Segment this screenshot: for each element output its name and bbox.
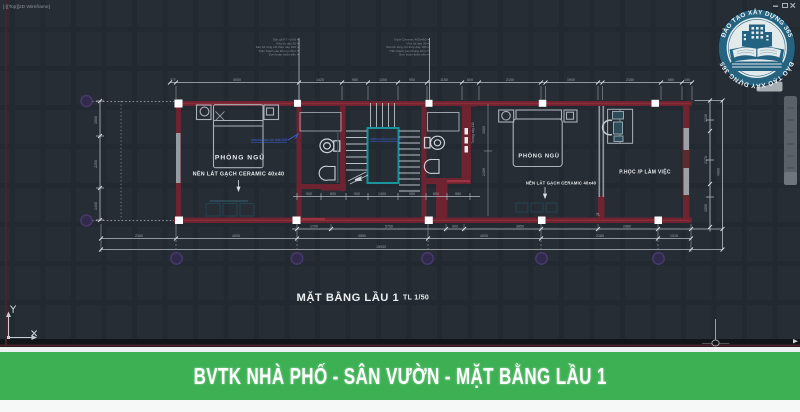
svg-text:TL 1/50: TL 1/50 <box>403 295 429 302</box>
svg-text:1420: 1420 <box>316 78 324 82</box>
svg-text:340: 340 <box>684 78 690 82</box>
svg-text:950: 950 <box>352 78 358 82</box>
svg-text:4000: 4000 <box>232 234 240 238</box>
svg-text:1330: 1330 <box>704 114 708 122</box>
svg-text:2200: 2200 <box>94 160 98 168</box>
svg-text:1700: 1700 <box>310 225 318 229</box>
svg-text:PHÒNG NGỦ: PHÒNG NGỦ <box>518 152 559 160</box>
svg-text:1800: 1800 <box>704 204 708 212</box>
svg-text:ĐIỂM NHẬN NƯỚC SH: ĐIỂM NHẬN NƯỚC SH <box>371 136 402 141</box>
svg-text:800: 800 <box>330 192 336 196</box>
svg-text:4850: 4850 <box>358 234 366 238</box>
svg-text:800: 800 <box>433 192 439 196</box>
svg-text:1015: 1015 <box>670 234 678 238</box>
svg-text:PHÒNG NGỦ: PHÒNG NGỦ <box>215 153 265 162</box>
svg-text:4900: 4900 <box>717 168 721 176</box>
svg-text:1900: 1900 <box>567 78 575 82</box>
svg-text:2180: 2180 <box>596 234 604 238</box>
svg-text:TL: TL <box>596 213 600 217</box>
svg-text:Tường xây 110: Tường xây 110 <box>471 122 475 144</box>
svg-text:4000: 4000 <box>480 234 488 238</box>
svg-text:Sơn hoàn thiện trần: Sơn hoàn thiện trần <box>399 53 427 57</box>
svg-text:1500: 1500 <box>94 116 98 124</box>
svg-text:600: 600 <box>467 78 473 82</box>
svg-text:900: 900 <box>452 225 458 229</box>
svg-text:950: 950 <box>409 192 415 196</box>
svg-text:2100: 2100 <box>506 78 514 82</box>
svg-text:1300: 1300 <box>379 78 387 82</box>
svg-text:2380: 2380 <box>135 234 143 238</box>
svg-text:Sơn hoàn thiện trần: Sơn hoàn thiện trần <box>269 53 297 57</box>
svg-text:5750: 5750 <box>385 225 393 229</box>
svg-text:15930: 15930 <box>376 245 386 249</box>
svg-text:1400: 1400 <box>94 202 98 210</box>
svg-text:P.HỌC /P LÀM VIỆC: P.HỌC /P LÀM VIỆC <box>619 168 671 176</box>
svg-text:575: 575 <box>170 78 175 82</box>
svg-text:660: 660 <box>668 78 674 82</box>
svg-text:mẫu lavabo nội thất 10B: mẫu lavabo nội thất 10B <box>251 137 288 142</box>
svg-text:4000: 4000 <box>233 78 241 82</box>
svg-text:950: 950 <box>409 78 415 82</box>
svg-text:1500: 1500 <box>482 126 486 134</box>
svg-text:950: 950 <box>455 192 461 196</box>
svg-text:3850: 3850 <box>516 225 524 229</box>
svg-text:2150: 2150 <box>626 78 634 82</box>
svg-text:MẶT BẰNG LẦU 1: MẶT BẰNG LẦU 1 <box>297 291 400 304</box>
svg-text:900: 900 <box>306 192 312 196</box>
svg-text:900: 900 <box>354 192 360 196</box>
svg-text:1300: 1300 <box>378 192 386 196</box>
svg-text:NỀN LÁT GẠCH CERAMIC 40x40: NỀN LÁT GẠCH CERAMIC 40x40 <box>193 171 285 178</box>
svg-text:[-][Top][2D Wireframe]: [-][Top][2D Wireframe] <box>3 4 50 10</box>
svg-text:2980: 2980 <box>623 225 631 229</box>
svg-text:NỀN LÁT GẠCH CERAMIC 40x40: NỀN LÁT GẠCH CERAMIC 40x40 <box>526 181 597 186</box>
svg-text:1150: 1150 <box>440 78 448 82</box>
svg-text:2400: 2400 <box>482 168 486 176</box>
svg-text:2170: 2170 <box>704 156 708 164</box>
